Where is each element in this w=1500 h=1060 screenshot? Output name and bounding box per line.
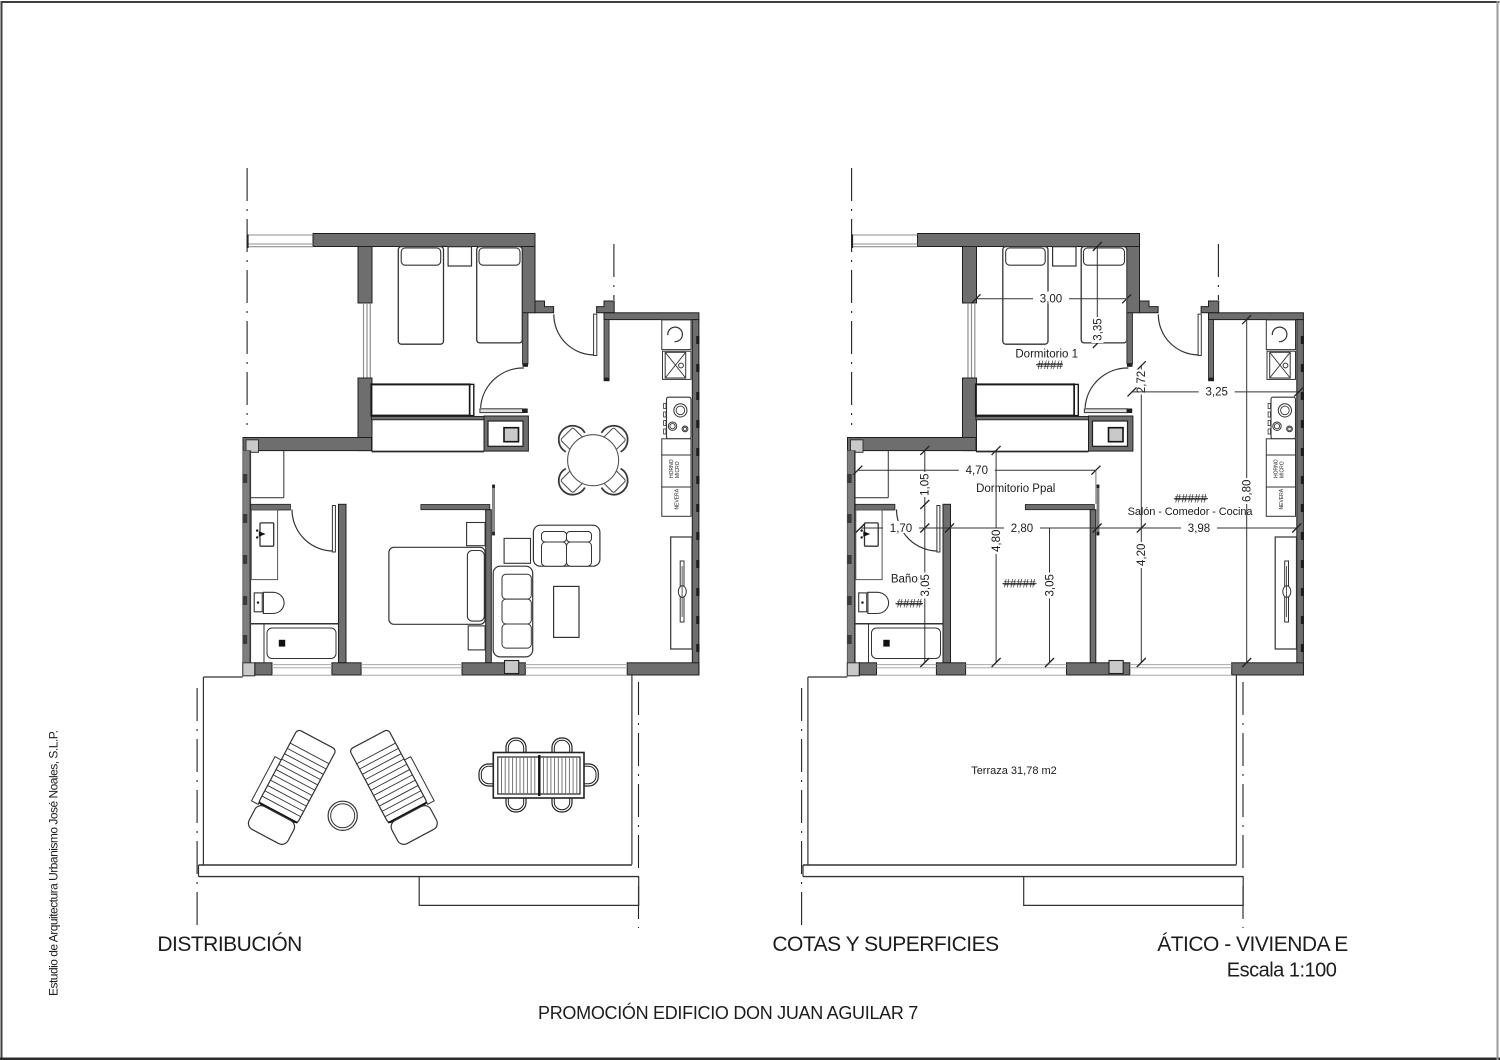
svg-text:2,72: 2,72 — [1136, 371, 1148, 393]
svg-text:####: #### — [1037, 360, 1063, 372]
svg-text:1,70: 1,70 — [890, 523, 912, 535]
svg-text:1,05: 1,05 — [920, 474, 932, 496]
svg-text:ÁTICO - VIVIENDA E: ÁTICO - VIVIENDA E — [1157, 933, 1348, 956]
svg-text:#####: ##### — [1004, 579, 1037, 591]
svg-text:DISTRIBUCIÓN: DISTRIBUCIÓN — [157, 933, 302, 956]
svg-text:3,05: 3,05 — [1045, 574, 1057, 596]
svg-text:Estudio de Arquitectura Urban: Estudio de Arquitectura Urbanismo José N… — [47, 730, 61, 996]
svg-text:Salón - Comedor - Cocina: Salón - Comedor - Cocina — [1128, 506, 1254, 518]
svg-text:#####: ##### — [1175, 494, 1208, 506]
svg-text:Dormitorio 1: Dormitorio 1 — [1015, 349, 1078, 361]
svg-text:3,25: 3,25 — [1206, 387, 1228, 399]
svg-text:3,35: 3,35 — [1093, 318, 1105, 340]
svg-text:3,00: 3,00 — [1040, 293, 1062, 305]
svg-text:COTAS Y SUPERFICIES: COTAS Y SUPERFICIES — [772, 933, 999, 956]
svg-text:2,80: 2,80 — [1011, 523, 1033, 535]
svg-text:Dormitorio Ppal: Dormitorio Ppal — [976, 483, 1055, 495]
svg-text:####: #### — [897, 599, 923, 611]
svg-text:PROMOCIÓN EDIFICIO DON JUAN AG: PROMOCIÓN EDIFICIO DON JUAN AGUILAR 7 — [538, 1002, 918, 1023]
svg-text:6,80: 6,80 — [1242, 480, 1254, 502]
svg-text:3,05: 3,05 — [920, 574, 932, 596]
svg-text:3,98: 3,98 — [1188, 523, 1210, 535]
svg-text:Terraza 31,78 m2: Terraza 31,78 m2 — [971, 765, 1057, 777]
svg-text:Baño: Baño — [891, 574, 918, 586]
svg-text:4,80: 4,80 — [991, 530, 1003, 552]
svg-text:Escala 1:100: Escala 1:100 — [1227, 960, 1337, 982]
svg-text:4,70: 4,70 — [966, 465, 988, 477]
svg-text:4,20: 4,20 — [1136, 544, 1148, 566]
